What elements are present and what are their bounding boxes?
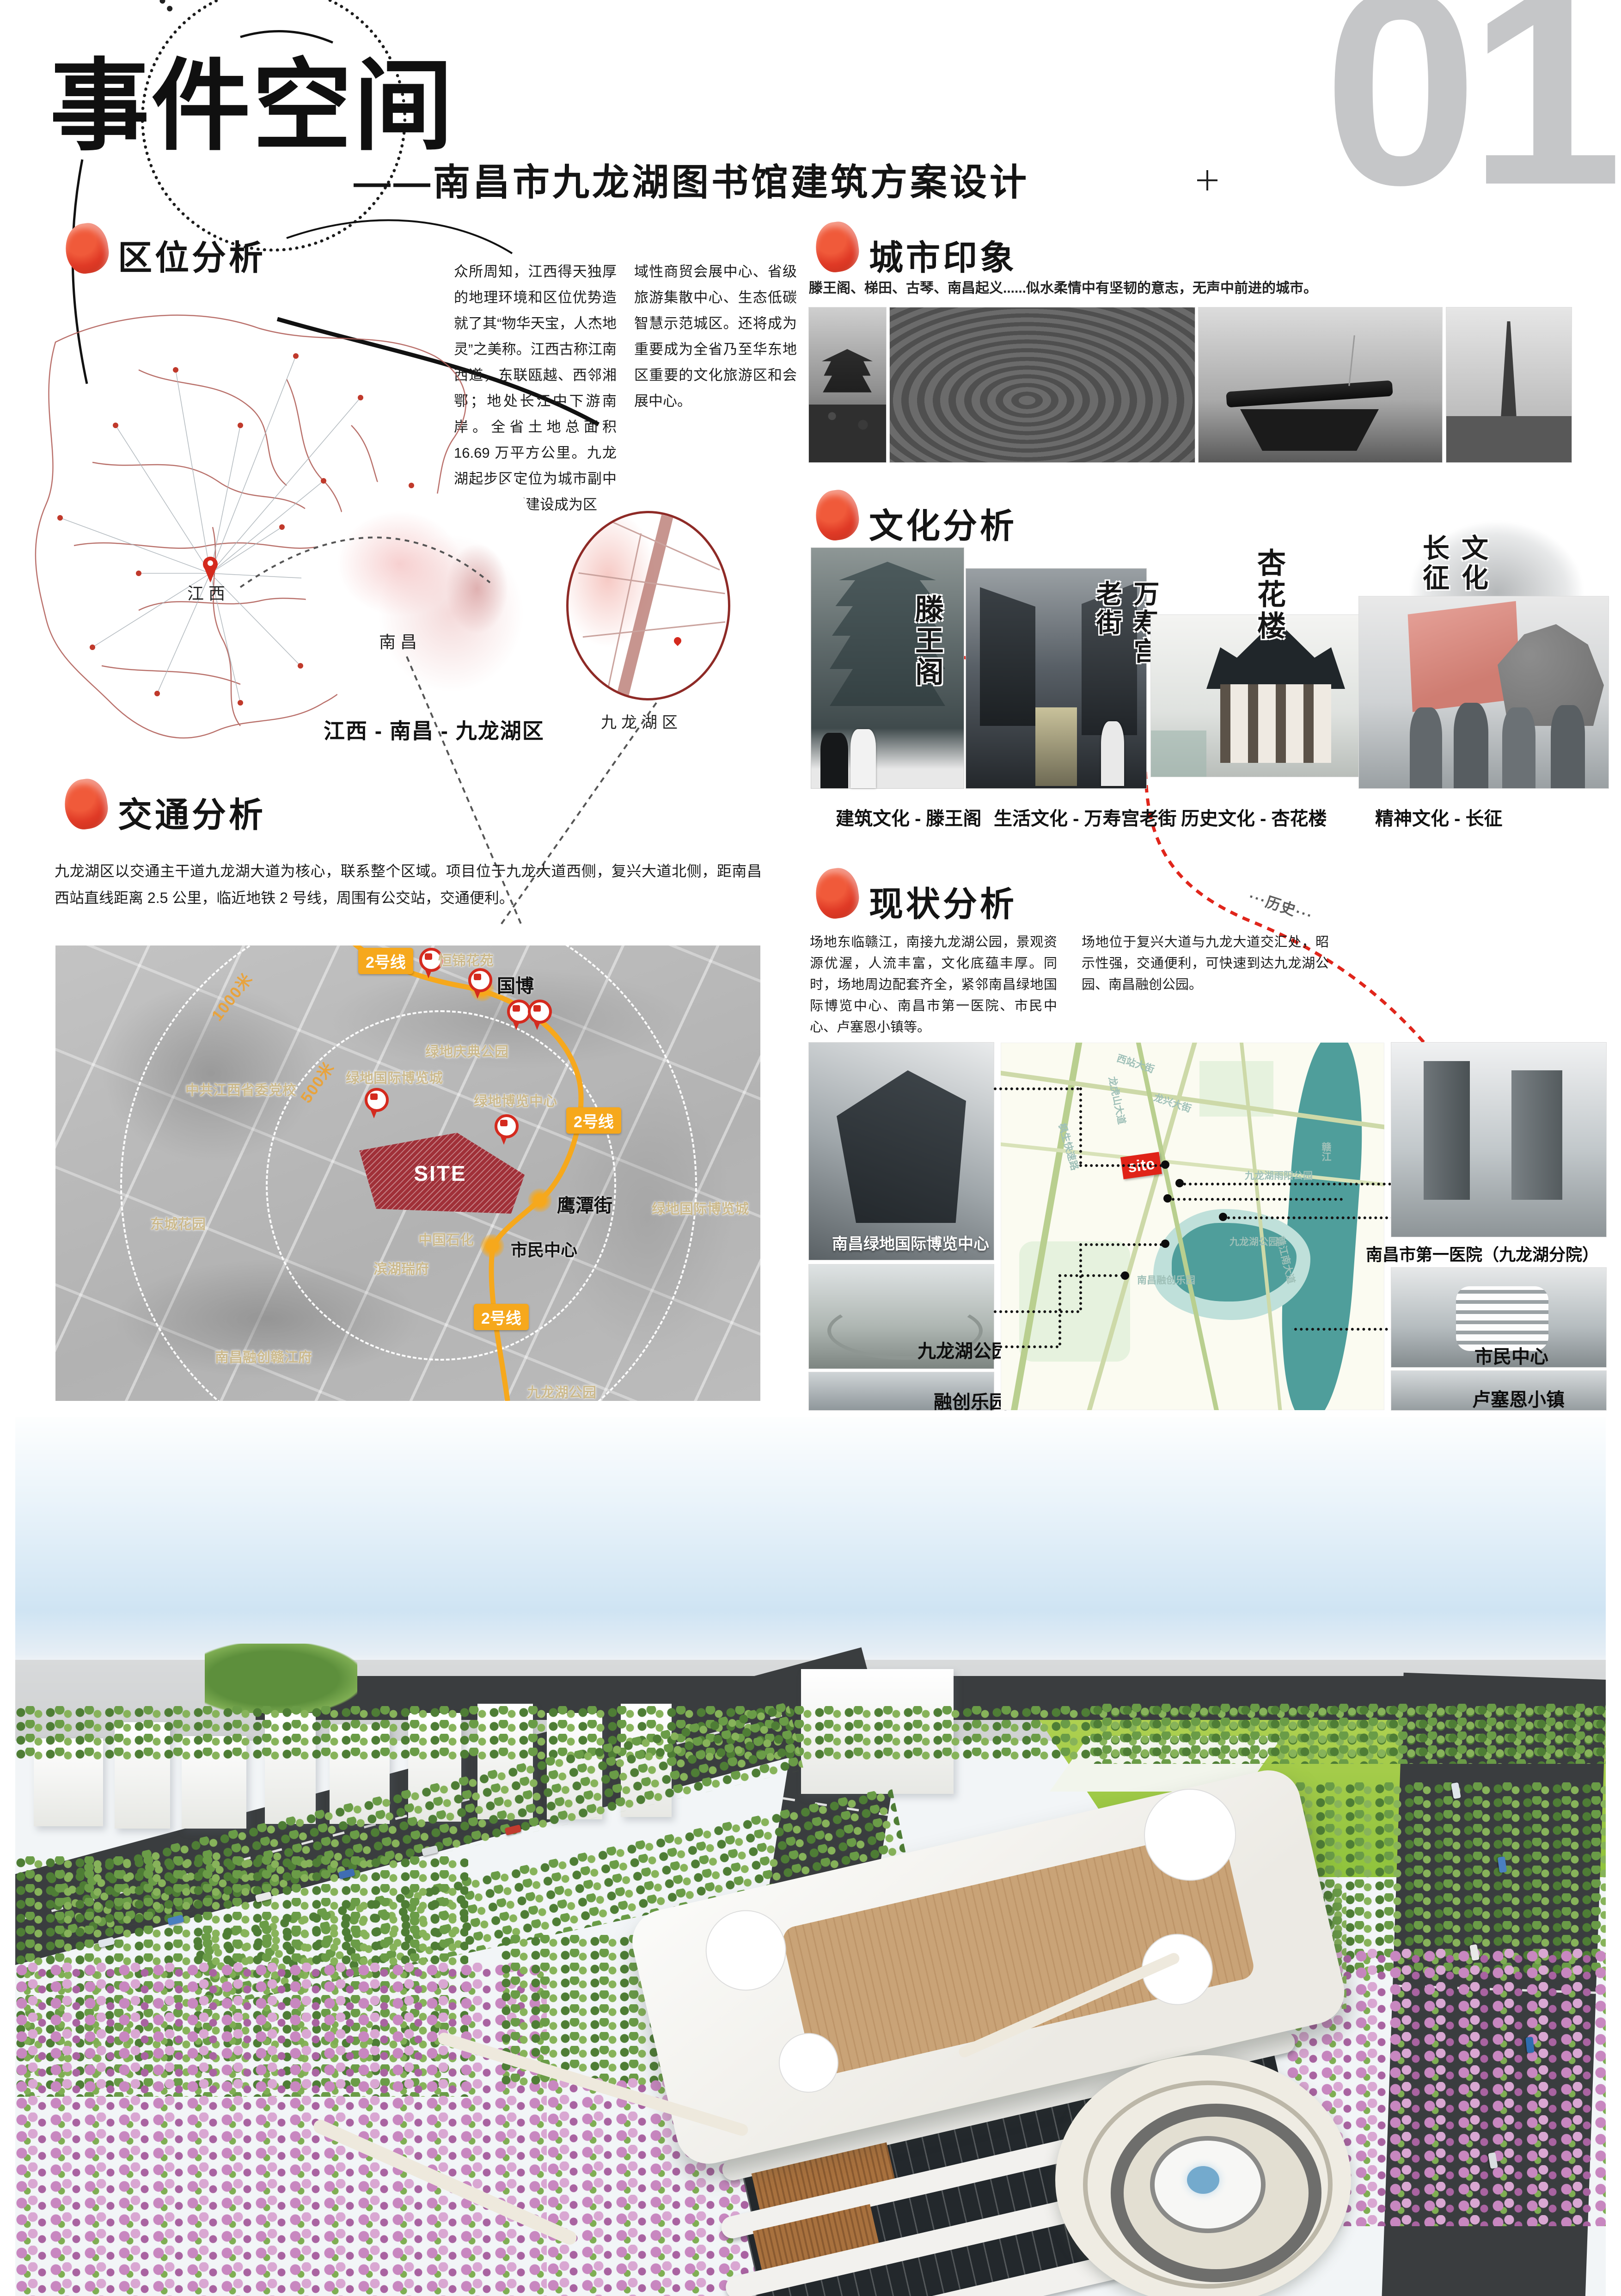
status-photo-expo-center: 南昌绿地国际博览中心	[809, 1043, 994, 1260]
status-right-label-1: 南昌市第一医院（九龙湖分院）	[1366, 1241, 1599, 1265]
metro-pin-icon-6	[365, 1088, 389, 1112]
impression-photo-monument	[1446, 307, 1572, 462]
guqin-silhouette	[1226, 380, 1393, 407]
incense-smoke	[1348, 335, 1355, 386]
culture-caption-history: 历史文化 - 杏花楼	[1181, 804, 1327, 830]
traffic-desc: 九龙湖区以交通主干道九龙湖大道为核心，联系整个区域。项目位于九龙大道西侧，复兴大…	[55, 858, 762, 911]
plaza-fountain	[1187, 2166, 1219, 2194]
connector-line-6a	[1058, 1274, 1123, 1277]
culture-caption-spirit: 精神文化 - 长征	[1375, 804, 1503, 830]
marcher-1	[1410, 707, 1442, 788]
civic-center-silhouette	[1456, 1286, 1548, 1351]
connector-line-5a	[1079, 1243, 1162, 1246]
calligraphy-changzheng: 文化长征	[1414, 534, 1492, 608]
page-subtitle: ——南昌市九龙湖图书馆建筑方案设计	[354, 153, 1029, 206]
connector-line-1b	[1079, 1087, 1082, 1164]
pink-forest-left-foreground	[15, 1963, 547, 2296]
impression-ink-dot-icon	[813, 219, 862, 275]
figure-silhouette-1	[820, 733, 848, 788]
impression-photo-terraces	[890, 307, 1195, 462]
plaza-base	[1446, 416, 1572, 462]
connector-line-6b	[1058, 1274, 1061, 1345]
status-right-label-2: 市民中心	[1474, 1342, 1548, 1369]
car-10	[1525, 2037, 1534, 2053]
impression-photo-guqin	[1199, 307, 1442, 462]
street-wall-left	[980, 587, 1035, 726]
calligraphy-tengwangge: 滕王阁	[906, 594, 948, 724]
status-left-label-3: 融创乐园	[934, 1387, 1008, 1414]
page-number: 01	[1324, 0, 1614, 227]
calligraphy-xinghualou: 杏花楼	[1248, 548, 1290, 677]
page-title: 事件空间	[50, 25, 455, 169]
marcher-3	[1502, 707, 1535, 788]
connector-line-1a	[994, 1087, 1079, 1090]
culture-caption-life: 生活文化 - 万寿宫老街	[994, 804, 1177, 830]
monument-silhouette	[1501, 321, 1517, 418]
pagoda-silhouette	[822, 349, 873, 405]
metro-pin-icon-5	[495, 1114, 519, 1138]
minor-label-jlh-park: 九龙湖公园	[1230, 1234, 1278, 1248]
status-heading: 现状分析	[869, 877, 1017, 926]
canal-water	[1151, 731, 1206, 777]
culture-photo-changzheng	[1359, 596, 1609, 788]
crop-mark-icon	[1197, 170, 1217, 190]
circular-plaza	[1055, 2055, 1351, 2296]
street-label-xizhan: 西站大街	[1115, 1051, 1156, 1076]
metro-pin-icon-4	[528, 1000, 552, 1024]
connector-line-5c	[994, 1310, 1079, 1313]
pavilion-columns	[1220, 684, 1331, 763]
minor-label-yuyang-park: 九龙湖雨阳公园	[1245, 1168, 1313, 1182]
status-paragraph-1: 场地东临赣江，南接九龙湖公园，景观资源优渥，人流丰富，文化底蕴丰厚。同时，场地周…	[810, 932, 1057, 1038]
culture-caption-architecture: 建筑文化 - 滕王阁	[836, 804, 982, 830]
location-heading: 区位分析	[118, 230, 266, 280]
table-silhouette	[1240, 409, 1379, 451]
place-qingdian-park: 绿地庆典公园	[425, 1040, 508, 1061]
treeline	[809, 405, 886, 462]
line2-badge-top: 2号线	[358, 948, 413, 974]
street-lights	[1035, 707, 1077, 786]
place-sinopec: 中国石化	[418, 1228, 474, 1249]
site-label: SITE	[414, 1161, 466, 1186]
hospital-tower-2	[1511, 1070, 1562, 1200]
street-label-longhushan: 龙虎山大道	[1106, 1075, 1129, 1126]
figure-silhouette-3	[1101, 721, 1124, 786]
station-dot-shimin	[480, 1234, 504, 1258]
connector-line-2	[1183, 1183, 1391, 1185]
place-hengjinhuayuan: 恒锦花苑	[438, 949, 494, 970]
golf-green-blob	[205, 1644, 357, 1713]
traffic-heading: 交通分析	[118, 787, 266, 837]
figure-silhouette-2	[850, 729, 876, 788]
red-flag	[1401, 601, 1521, 712]
station-dot-yingtanjie	[528, 1188, 552, 1212]
place-bolan-center: 绿地博览中心	[474, 1090, 557, 1110]
place-bolan-city-1: 绿地国际博览城	[346, 1067, 443, 1087]
connector-line-4	[1227, 1216, 1394, 1219]
connector-line-7	[1294, 1328, 1394, 1331]
line2-badge-mid: 2号线	[566, 1107, 621, 1134]
status-paragraph-2: 场地位于复兴大道与九龙大道交汇处，昭示性强，交通便利，可快速到达九龙湖公园、南昌…	[1082, 932, 1329, 995]
location-paragraph-2: 域性商贸会展中心、省级旅游集散中心、生态低碳智慧示范城区。还将成为重要成为全省乃…	[634, 259, 797, 414]
minor-label-ganjiang: 赣江	[1319, 1142, 1333, 1161]
status-left-label-1: 南昌绿地国际博览中心	[832, 1231, 989, 1254]
station-label-shimin: 市民中心	[511, 1237, 577, 1261]
place-dongchenghuayuan: 东城花园	[150, 1213, 206, 1233]
status-left-label-2: 九龙湖公园	[918, 1336, 1010, 1363]
connector-line-3	[1172, 1198, 1343, 1201]
status-photo-hospital	[1391, 1043, 1606, 1237]
place-bolan-city-2: 绿地国际博览城	[652, 1197, 749, 1218]
marcher-4	[1551, 705, 1585, 788]
place-ganjiangfu: 南昌融创赣江府	[215, 1346, 312, 1366]
status-plan-map: 西站大街 龙兴大街 枫生快速路 龙虎山大道 赣江南大道 九龙湖雨阳公园 九龙湖公…	[1001, 1043, 1384, 1410]
presentation-board: 事件空间 ——南昌市九龙湖图书馆建筑方案设计 01 区位分析 众所周知，江西得天…	[0, 0, 1621, 2296]
place-binhuruifu: 滨湖瑞府	[373, 1258, 429, 1278]
connector-line-6c	[994, 1345, 1058, 1348]
connector-line-1c	[1079, 1164, 1162, 1167]
connector-dot-3	[1163, 1194, 1172, 1203]
connector-dot-2	[1175, 1179, 1184, 1187]
impression-photo-tengwang-pavilion	[809, 307, 886, 462]
roof-skylight-1	[697, 1902, 794, 1999]
impression-heading: 城市印象	[869, 230, 1017, 280]
expo-building-silhouette	[837, 1070, 966, 1223]
impression-desc: 滕王阁、梯田、古琴、南昌起义......似水柔情中有坚韧的意志，无声中前进的城市…	[809, 276, 1317, 297]
station-label-guobo: 国博	[497, 971, 534, 998]
hospital-tower-1	[1424, 1061, 1470, 1200]
connector-dot-4	[1219, 1213, 1227, 1221]
metro-pin-icon-2	[468, 968, 492, 992]
status-right-label-3: 卢塞恩小镇	[1472, 1385, 1565, 1412]
marcher-2	[1454, 703, 1488, 788]
station-label-yingtanjie: 鹰潭街	[557, 1191, 612, 1217]
tree-row-right-top	[1092, 1704, 1606, 1764]
line2-badge-bottom: 2号线	[474, 1304, 529, 1330]
traffic-satellite-map: 2号线 2号线 2号线 国博 鹰潭街 市民中心 1000米 500米 SITE …	[55, 945, 760, 1401]
place-jiulonghu-park: 九龙湖公园	[527, 1381, 596, 1401]
hero-rendering	[15, 1417, 1606, 2296]
place-dangxiao: 中共江西省委党校	[185, 1079, 296, 1099]
minor-label-sunac-land: 南昌融创乐园	[1137, 1273, 1195, 1287]
